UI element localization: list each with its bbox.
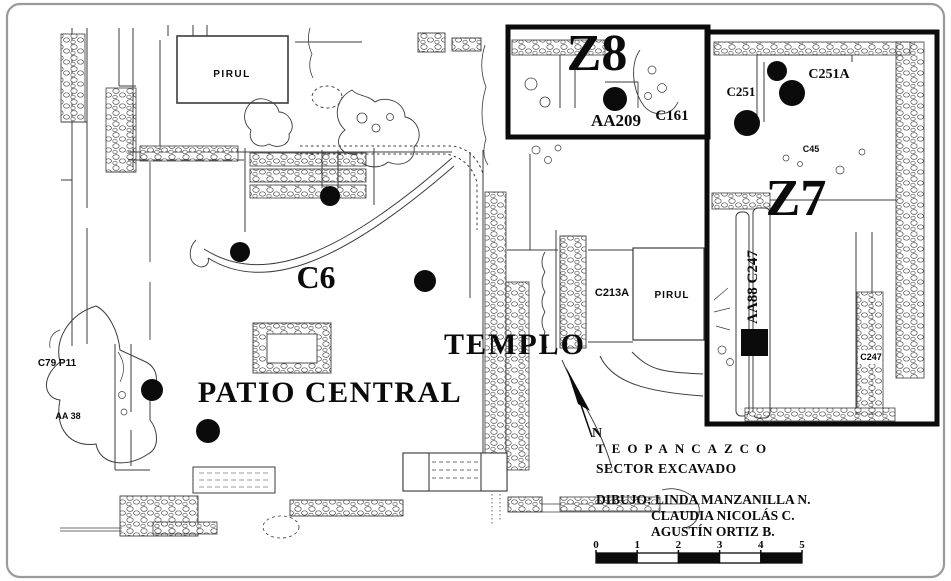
credit-line-3: AGUSTÍN ORTIZ B. <box>651 524 811 540</box>
excavation-square-marker <box>741 329 768 356</box>
map-label-c213a: C213A <box>595 287 629 299</box>
scale-tick-label: 1 <box>634 539 640 551</box>
sector-label: SECTOR EXCAVADO <box>596 461 811 477</box>
map-label-c247: C247 <box>860 352 882 362</box>
scale-bar: 012345 <box>593 539 805 563</box>
site-name: TEOPANCAZCO <box>596 441 811 457</box>
excavation-dot <box>603 87 627 111</box>
credit-line-2: CLAUDIA NICOLÁS C. <box>651 508 811 524</box>
excavation-dot <box>779 80 805 106</box>
map-label-c45: C45 <box>803 144 820 154</box>
scale-tick-label: 2 <box>676 539 682 551</box>
map-label-pirul-east: PIRUL <box>655 290 690 301</box>
map-label-c161: C161 <box>655 108 688 124</box>
map-label-templo: TEMPLO <box>444 328 586 361</box>
map-label-aa209: AA209 <box>591 111 641 130</box>
scale-bar-segment <box>637 553 678 563</box>
map-label-zone-z7: Z7 <box>766 170 827 227</box>
map-label-c79-p11: C79 P11 <box>38 358 77 369</box>
scale-tick-label: 4 <box>758 539 764 551</box>
excavation-dot <box>196 419 220 443</box>
map-label-c251a: C251A <box>808 67 850 82</box>
scale-tick-label: 3 <box>717 539 723 551</box>
excavation-dot <box>320 186 340 206</box>
map-label-patio-central: PATIO CENTRAL <box>198 376 462 409</box>
scale-tick-label: 0 <box>593 539 599 551</box>
map-label-aa88-c247: AA88 C247 <box>745 250 761 324</box>
north-arrow-icon <box>566 367 592 437</box>
scale-bar-segment <box>596 553 637 563</box>
caption-block: TEOPANCAZCO SECTOR EXCAVADO DIBUJO: LIND… <box>596 441 811 540</box>
scale-bar-segment <box>761 553 802 563</box>
scale-bar-segment <box>720 553 761 563</box>
map-label-c6: C6 <box>296 259 335 295</box>
map-figure: PIRULZ8AA209C161C251C251AC45Z7AA88 C247C… <box>0 0 951 581</box>
excavation-dot <box>734 110 760 136</box>
map-label-pirul-north: PIRUL <box>213 69 251 80</box>
map-label-c251: C251 <box>727 84 756 99</box>
map-label-north-n: N <box>592 426 602 441</box>
credit-line-1: DIBUJO: LINDA MANZANILLA N. <box>596 492 811 508</box>
map-label-aa-38: AA 38 <box>55 411 80 421</box>
excavation-dot <box>767 61 787 81</box>
map-label-zone-z8: Z8 <box>567 25 628 82</box>
excavation-dot <box>414 270 436 292</box>
scale-bar-segment <box>678 553 719 563</box>
scale-tick-label: 5 <box>799 539 805 551</box>
excavation-dot <box>230 242 250 262</box>
excavation-dot <box>141 379 163 401</box>
